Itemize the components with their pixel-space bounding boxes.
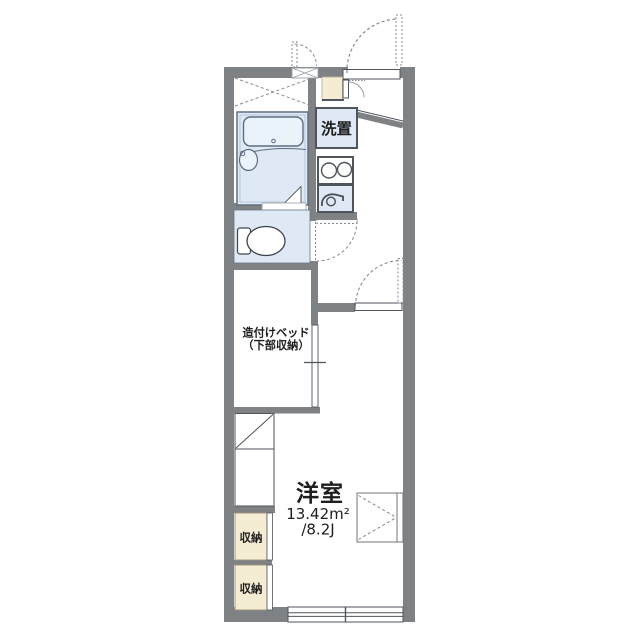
bath-washbasin <box>240 150 258 171</box>
wall-unit-box <box>357 493 403 542</box>
shoe-storage-door-leaf <box>343 80 349 98</box>
wall-mainroom-door <box>318 303 355 312</box>
wall-storage-divider <box>234 560 272 565</box>
mainroom-area-jo: /8.2J <box>301 521 334 539</box>
wall-bedroom-bottom <box>224 407 320 414</box>
bathtub <box>244 117 304 146</box>
mainroom-area: 洋室 13.42m² /8.2J <box>286 480 403 542</box>
stove-burner-left <box>322 163 337 178</box>
bed-label-line1: 造付けベッド <box>242 326 309 340</box>
entrance-door-swing-arc <box>347 19 398 73</box>
wall-right <box>403 67 415 622</box>
floorplan-drawing: 洗置 造付けベッド （下部収納） 収納 <box>0 0 640 640</box>
entrance-door-open-position <box>396 15 402 65</box>
floorplan-canvas: 洗置 造付けベッド （下部収納） 収納 <box>0 0 640 640</box>
bath-window-swing-arc <box>295 44 317 66</box>
bed-label-line2: （下部収納） <box>242 338 309 352</box>
closet-lower-box <box>235 449 274 506</box>
bottom-window <box>288 607 403 622</box>
wall-bath-kitchen-divider <box>308 77 316 221</box>
wall-top <box>224 67 348 78</box>
wall-left <box>224 67 234 622</box>
mainroom-door-leaf <box>355 303 402 311</box>
shoe-storage-door-arc <box>349 82 365 98</box>
laundry-label: 洗置 <box>321 119 352 138</box>
kitchen-area: 洗置 <box>316 108 357 212</box>
wall-bedroom-right-upper <box>311 268 318 325</box>
shoe-storage-box <box>322 77 343 100</box>
storage-lower-door <box>267 565 273 610</box>
wall-closet-bottom <box>234 506 275 513</box>
bedroom-partition <box>312 325 318 407</box>
entrance-door-leaf <box>343 70 400 80</box>
bedroom-area: 造付けベッド （下部収納） <box>242 325 326 407</box>
toilet-door-swing-arc <box>317 221 357 261</box>
mainroom-door-open-position <box>398 259 403 304</box>
mainroom-door-swing-arc <box>356 261 402 307</box>
bath-window-open-position <box>292 42 297 67</box>
mainroom-label: 洋室 <box>296 480 344 507</box>
toilet-bowl <box>247 227 285 256</box>
sink-faucet-base <box>327 197 336 206</box>
storage-upper-door <box>267 513 273 560</box>
mainroom-door <box>355 259 403 311</box>
storage-lower-label: 収納 <box>240 582 263 596</box>
stove-burner-right <box>338 163 352 177</box>
storage-upper-label: 収納 <box>240 531 263 545</box>
